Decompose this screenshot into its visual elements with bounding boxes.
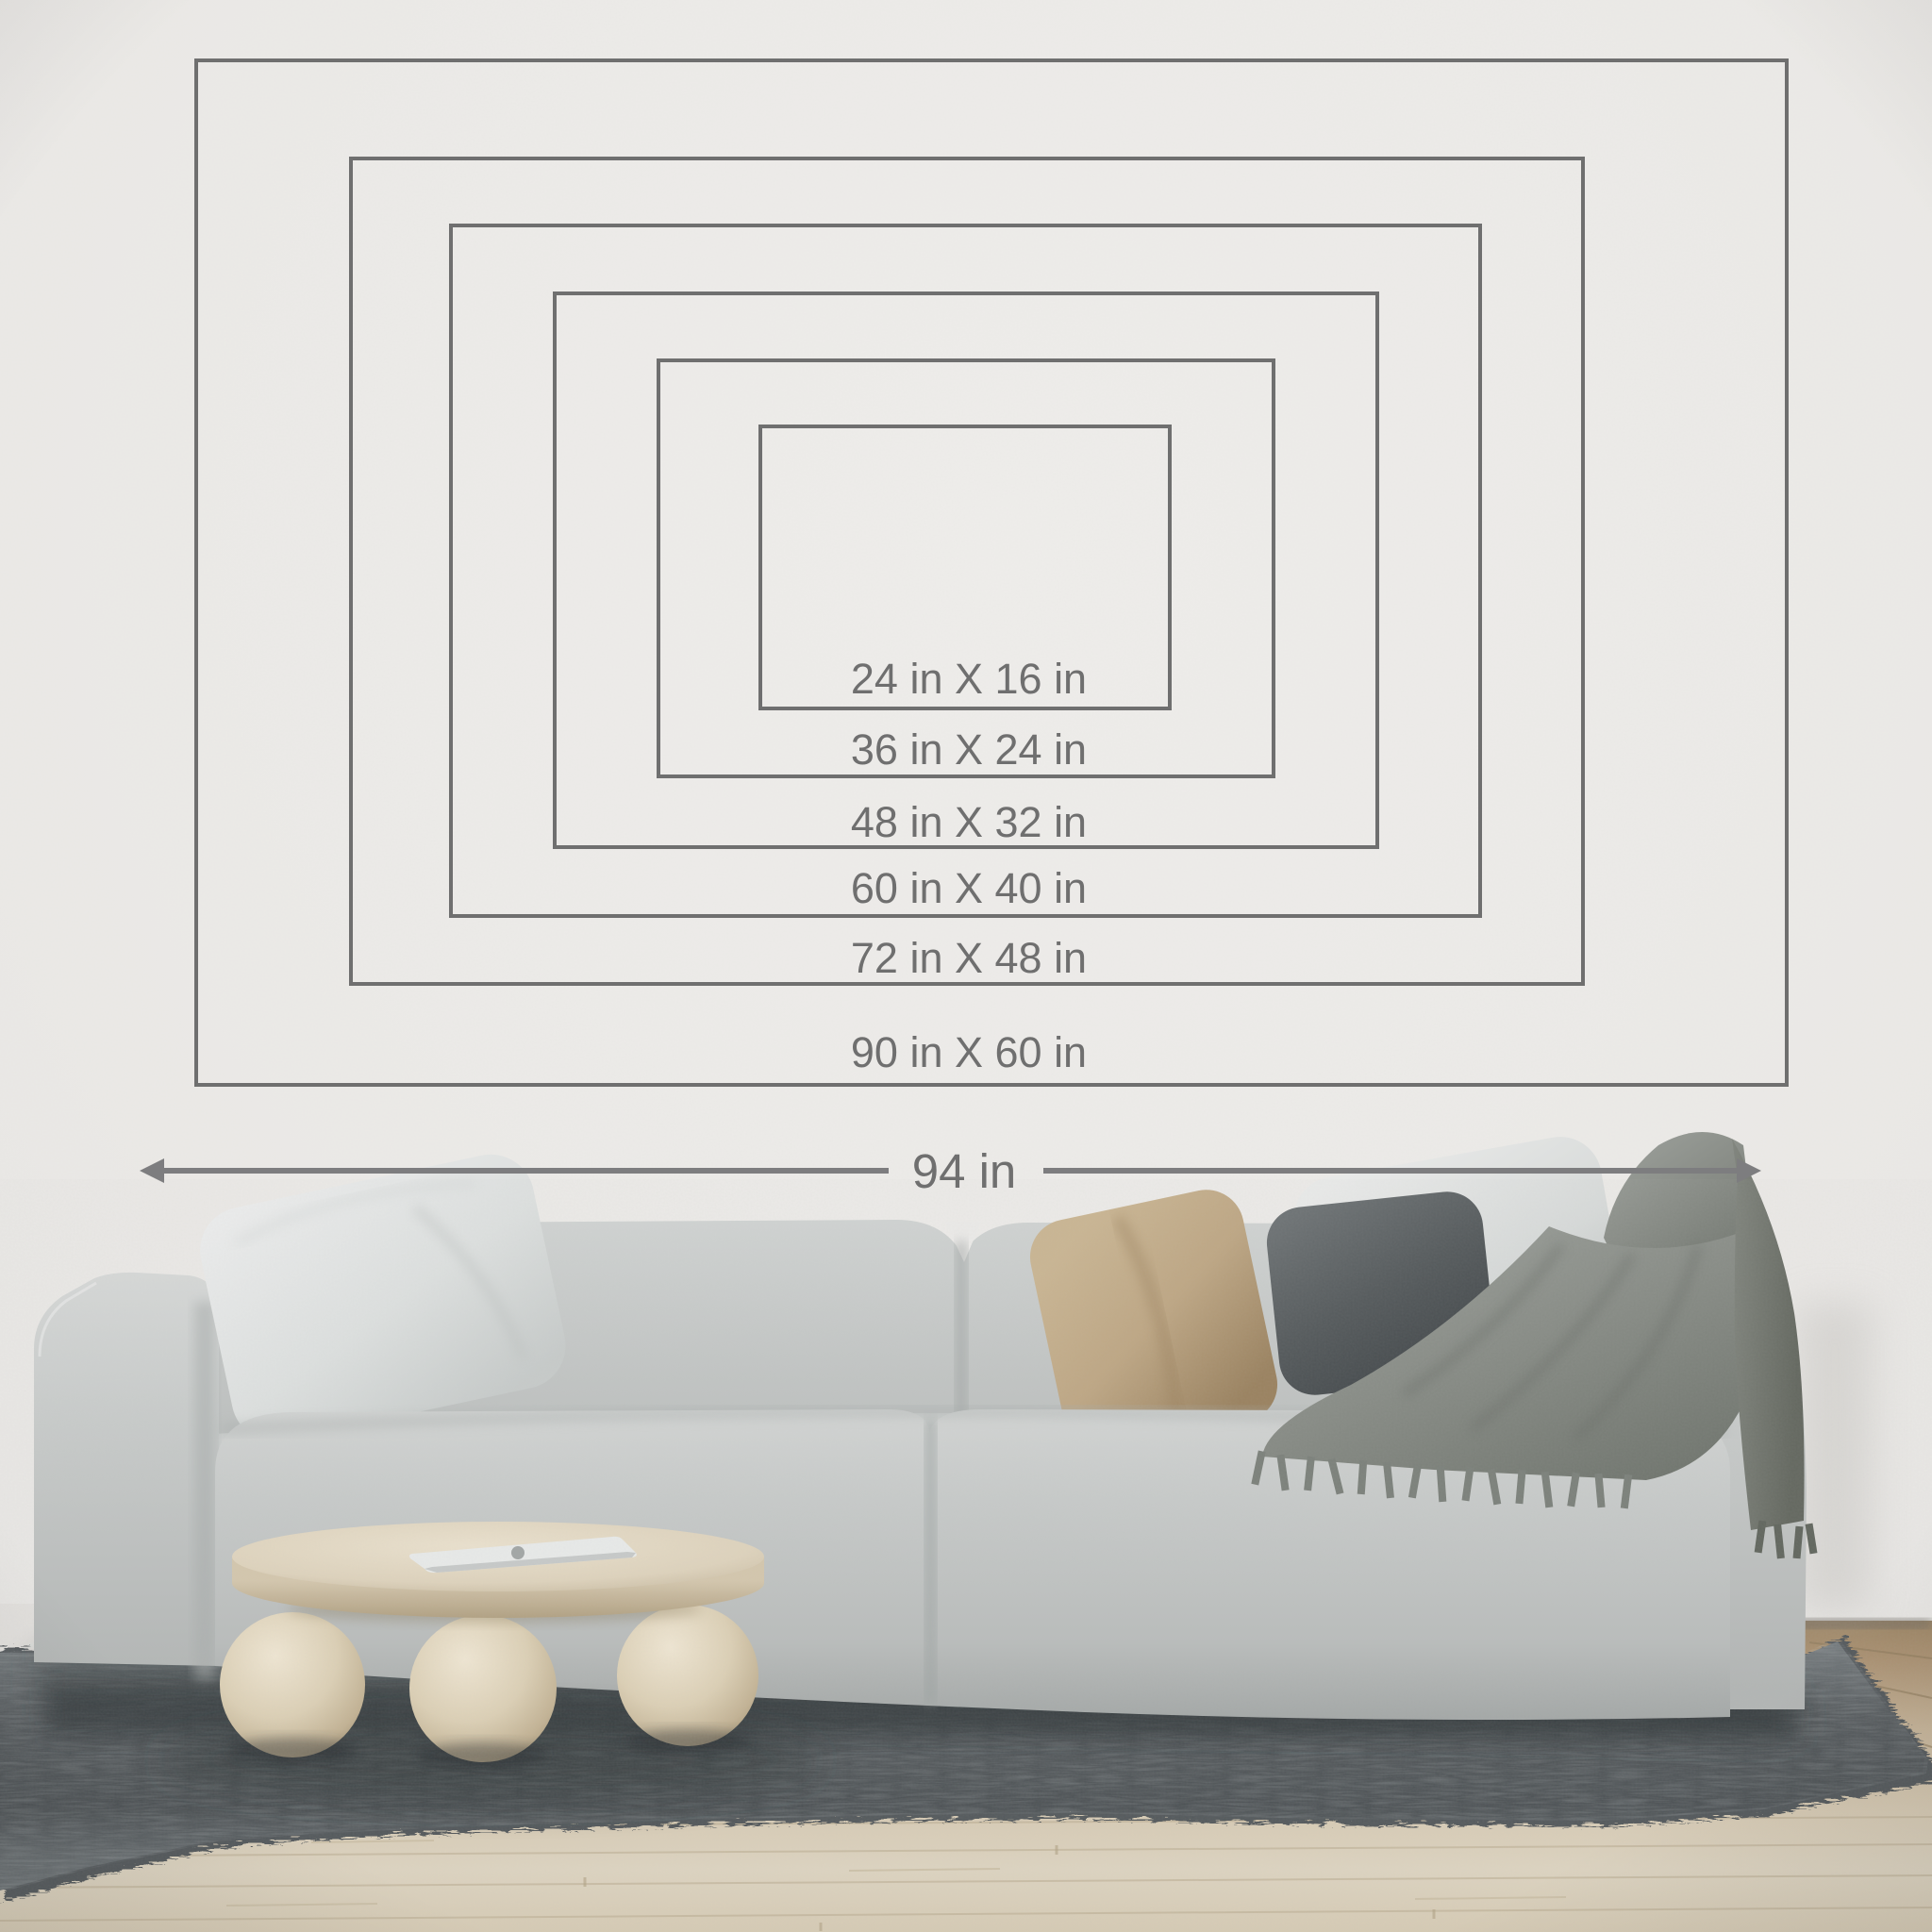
svg-text:94 in: 94 in	[912, 1144, 1017, 1198]
